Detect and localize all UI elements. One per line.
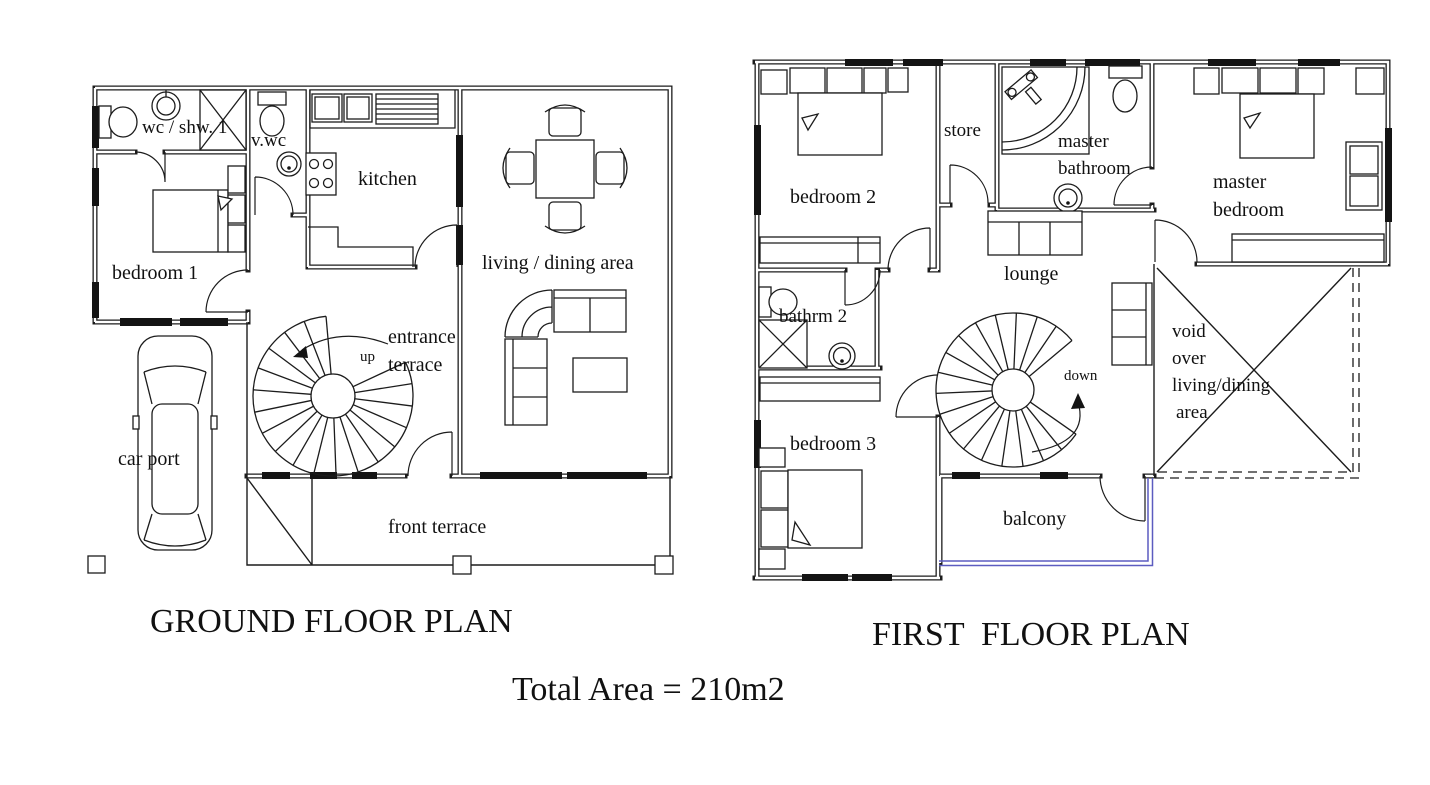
room-label-terrace: terrace — [388, 354, 443, 376]
stair-down-label: down — [1064, 368, 1098, 384]
car-icon — [133, 336, 217, 550]
total-area-text: Total Area = 210m2 — [512, 671, 785, 708]
shower-handle-icon — [1026, 87, 1042, 104]
floor-plan-svg: wc / shw. 1 v.wc kitchen living / dining… — [0, 0, 1430, 785]
pillow — [1222, 68, 1258, 93]
dining-table-icon — [536, 140, 594, 198]
room-label-store: store — [944, 120, 981, 141]
bedroom3-furniture — [759, 377, 880, 569]
dining-set — [503, 105, 627, 233]
first-floor-plan: bedroom 2 store master bathroom master b… — [754, 59, 1392, 581]
kitchen-sink-icon — [312, 94, 342, 122]
bedroom1-furniture — [153, 166, 245, 252]
room-label-wc-shw: wc / shw. 1 — [142, 117, 227, 138]
void-label-2: over — [1172, 348, 1206, 369]
down-arrow — [1032, 402, 1080, 452]
stair-up-label: up — [360, 349, 375, 365]
stove-icon — [306, 153, 336, 195]
void-label-3: living/dining — [1172, 375, 1271, 396]
sofa-icon — [988, 211, 1082, 255]
coffee-table-icon — [573, 358, 627, 392]
bathroom2-fixtures — [759, 287, 855, 369]
room-label-kitchen: kitchen — [358, 168, 417, 190]
toilet-tank-icon — [1109, 66, 1142, 78]
pillow — [761, 510, 788, 547]
pillow — [761, 471, 788, 508]
spiral-staircase — [936, 313, 1076, 467]
column — [655, 556, 673, 574]
room-label-master-bathroom-1: master — [1058, 131, 1109, 152]
chair-icon — [549, 108, 581, 136]
toilet-bowl-icon — [1113, 80, 1137, 112]
void-cross — [1157, 268, 1351, 472]
chair-icon — [549, 202, 581, 230]
desk-icon — [1232, 234, 1384, 262]
sink-icon — [1054, 184, 1082, 212]
room-label-living-dining: living / dining area — [482, 252, 634, 274]
toilet-tank-icon — [258, 92, 286, 105]
shelf-icon — [760, 377, 880, 401]
sofa-icon — [505, 339, 547, 425]
room-label-bedroom2: bedroom 2 — [790, 186, 876, 208]
pillow — [790, 68, 825, 93]
pillow — [1260, 68, 1296, 93]
lounge-furniture — [988, 211, 1082, 255]
desk-icon — [760, 237, 880, 263]
toilet-bowl-icon — [109, 107, 137, 137]
down-arrowhead — [1071, 393, 1085, 409]
sofa-set — [505, 290, 627, 425]
hall-shelf — [1112, 283, 1152, 365]
room-label-bedroom3: bedroom 3 — [790, 433, 876, 455]
kitchen-counter — [308, 227, 413, 267]
void-label-1: void — [1172, 321, 1206, 342]
room-label-master-bedroom-1: master — [1213, 171, 1267, 193]
first-floor-title: FIRST FLOOR PLAN — [872, 616, 1190, 653]
room-label-car-port: car port — [118, 448, 180, 470]
room-label-vwc: v.wc — [251, 130, 286, 151]
room-label-lounge: lounge — [1004, 263, 1059, 285]
column — [88, 556, 105, 573]
floor-plan-drawing: wc / shw. 1 v.wc kitchen living / dining… — [0, 0, 1430, 785]
room-label-front-terrace: front terrace — [388, 516, 486, 538]
master-bedroom-furniture — [1194, 68, 1384, 262]
void-label-4: area — [1176, 402, 1208, 423]
column — [453, 556, 471, 574]
chair-icon — [596, 152, 624, 184]
bed-icon — [153, 190, 228, 252]
room-label-master-bedroom-2: bedroom — [1213, 199, 1285, 221]
room-label-entrance: entrance — [388, 326, 456, 348]
room-label-balcony: balcony — [1003, 508, 1066, 530]
chair-icon — [506, 152, 534, 184]
up-arrowhead — [293, 346, 308, 358]
kitchen-sink-icon — [344, 94, 372, 122]
room-label-bedroom1: bedroom 1 — [112, 262, 198, 284]
pillow — [827, 68, 862, 93]
ground-floor-title: GROUND FLOOR PLAN — [150, 603, 513, 640]
room-label-master-bathroom-2: bathroom — [1058, 158, 1131, 179]
ground-floor-plan: wc / shw. 1 v.wc kitchen living / dining… — [88, 88, 673, 574]
bedroom2-furniture — [760, 68, 908, 263]
room-label-bathrm2: bathrm 2 — [779, 306, 847, 327]
corner-sofa-icon — [505, 290, 552, 337]
